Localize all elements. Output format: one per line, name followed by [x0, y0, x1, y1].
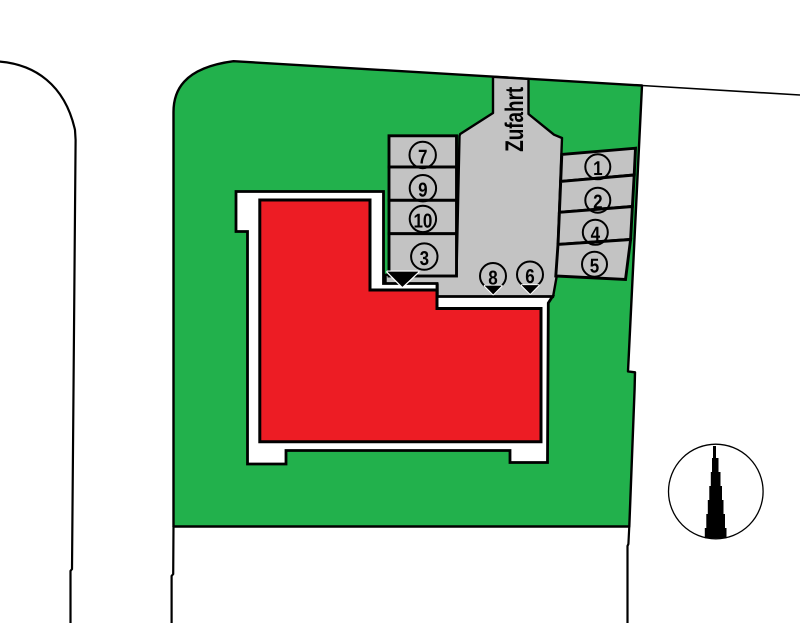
- svg-text:10: 10: [413, 210, 432, 232]
- svg-text:1: 1: [593, 158, 602, 180]
- svg-text:3: 3: [420, 248, 429, 270]
- svg-text:7: 7: [418, 146, 427, 168]
- svg-text:4: 4: [591, 224, 601, 246]
- svg-text:9: 9: [418, 180, 427, 202]
- svg-text:5: 5: [590, 256, 599, 278]
- svg-text:2: 2: [593, 192, 602, 214]
- svg-text:Zufahrt: Zufahrt: [501, 86, 529, 151]
